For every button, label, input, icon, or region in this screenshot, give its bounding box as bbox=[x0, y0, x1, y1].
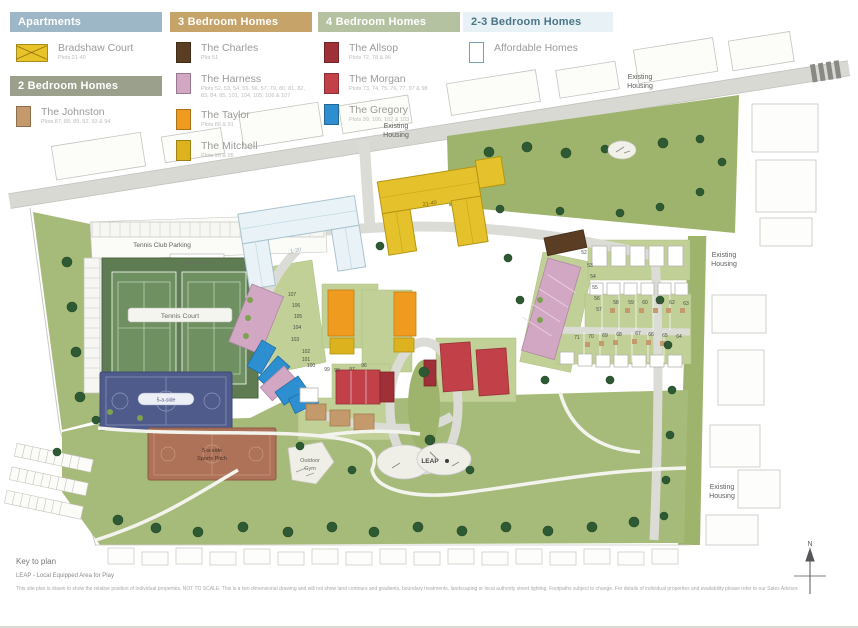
plot-number: 104 bbox=[293, 325, 302, 331]
plot-number: 69 bbox=[602, 333, 608, 339]
plot-number: 105 bbox=[294, 314, 303, 320]
plot-number: 97 bbox=[349, 367, 355, 373]
plot-number: 106 bbox=[292, 303, 301, 309]
bradshaw-court-swatch bbox=[16, 44, 48, 62]
svg-text:Housing: Housing bbox=[627, 83, 653, 90]
plot-number: 53 bbox=[587, 263, 593, 269]
legend-column-apartments: Apartments Bradshaw Court Plots 21-40 2 … bbox=[10, 12, 162, 127]
legend-item-gregory: The Gregory Plots 99, 100, 102 & 103 bbox=[324, 104, 460, 125]
plot-number: 60 bbox=[642, 300, 648, 306]
legend-item-morgan: The Morgan Plots 73, 74, 75, 76, 77, 97 … bbox=[324, 73, 460, 94]
gregory-swatch bbox=[324, 104, 339, 125]
spectator-area-label: Spectator Area bbox=[183, 260, 211, 265]
plot-number: 68 bbox=[616, 332, 622, 338]
leap-marker-dot bbox=[445, 459, 449, 463]
allsop-swatch bbox=[324, 42, 339, 63]
legend-item-allsop: The Allsop Plots 72, 78 & 96 bbox=[324, 42, 460, 63]
plot-number: 54 bbox=[590, 274, 596, 280]
leap-note: LEAP - Local Equipped Area for Play bbox=[16, 573, 836, 579]
plot-number: 64 bbox=[676, 334, 682, 340]
plot-number: 102 bbox=[302, 349, 311, 355]
charles-swatch bbox=[176, 42, 191, 63]
legend-item-bradshaw-court: Bradshaw Court Plots 21-40 bbox=[16, 42, 162, 62]
svg-text:Housing: Housing bbox=[383, 132, 409, 139]
svg-text:Housing: Housing bbox=[709, 493, 735, 500]
top-green-feature bbox=[608, 141, 636, 159]
existing-housing-label: Existing bbox=[710, 484, 735, 491]
legend-item-name: Bradshaw Court bbox=[58, 42, 133, 54]
taylor-swatch bbox=[176, 109, 191, 130]
plot-number: 59 bbox=[628, 300, 634, 306]
harness-swatch bbox=[176, 73, 191, 94]
disclaimer-text: This site plan is drawn to show the rela… bbox=[16, 586, 806, 592]
plot-number: 62 bbox=[669, 300, 675, 306]
plot-number: 56 bbox=[594, 296, 600, 302]
plot-number: 63 bbox=[683, 301, 689, 307]
legend-header-2-bed: 2 Bedroom Homes bbox=[10, 76, 162, 96]
five-a-side-pitch bbox=[148, 428, 276, 480]
legend-item-affordable-homes: Affordable Homes bbox=[469, 42, 613, 63]
plot-number: 55 bbox=[592, 285, 598, 291]
legend-item-johnston: The Johnston Plots 87, 88, 89, 92, 93 & … bbox=[16, 106, 162, 127]
plot-number: 51 bbox=[579, 239, 585, 245]
existing-housing-label: Existing bbox=[628, 74, 653, 81]
legend-header-3-bed: 3 Bedroom Homes bbox=[170, 12, 312, 32]
legend-column-4-bed: 4 Bedroom Homes The Allsop Plots 72, 78 … bbox=[318, 12, 460, 125]
plot-number: 103 bbox=[291, 337, 300, 343]
plot-number: 70 bbox=[588, 334, 594, 340]
pitch-label: 5-a-side bbox=[202, 448, 222, 454]
plot-number: 58 bbox=[613, 300, 619, 306]
plot-number: 67 bbox=[635, 331, 641, 337]
north-label: N bbox=[807, 541, 812, 548]
plot-number: 52 bbox=[581, 250, 587, 256]
legend-item-plots: Plots 21-40 bbox=[58, 55, 133, 62]
block-21-40-label: 21-40 bbox=[422, 200, 437, 208]
plot-number: 71 bbox=[574, 335, 580, 341]
site-plan-page: N Existing Housing Existing Housing Exis… bbox=[0, 0, 858, 628]
morgan-swatch bbox=[324, 73, 339, 94]
tennis-club-parking-label: Tennis Club Parking bbox=[133, 242, 191, 249]
johnston-swatch bbox=[16, 106, 31, 127]
affordable-homes-swatch bbox=[469, 42, 484, 63]
leap-label: LEAP bbox=[421, 458, 439, 465]
legend-column-2-3-bed: 2-3 Bedroom Homes Affordable Homes bbox=[463, 12, 613, 63]
outdoor-gym-label: Outdoor bbox=[300, 458, 320, 464]
svg-text:Housing: Housing bbox=[711, 261, 737, 268]
legend-item-mitchell: The Mitchell Plots 90 & 95 bbox=[176, 140, 312, 161]
legend-header-2-3-bed: 2-3 Bedroom Homes bbox=[463, 12, 613, 32]
plot-number: 107 bbox=[288, 292, 297, 298]
plot-number: 65 bbox=[662, 333, 668, 339]
key-to-plan: Key to plan LEAP - Local Equipped Area f… bbox=[16, 557, 836, 592]
legend-header-4-bed: 4 Bedroom Homes bbox=[318, 12, 460, 32]
legend-item-charles: The Charles Plot 51 bbox=[176, 42, 312, 63]
plot-number: 61 bbox=[656, 300, 662, 306]
svg-text:Gym: Gym bbox=[304, 466, 316, 472]
plot-number: 99 bbox=[324, 367, 330, 373]
key-title: Key to plan bbox=[16, 557, 836, 566]
plot-number: 96 bbox=[361, 363, 367, 369]
tennis-court-label: Tennis Court bbox=[161, 313, 199, 320]
legend-column-3-bed: 3 Bedroom Homes The Charles Plot 51 The … bbox=[170, 12, 312, 161]
legend-header-apartments: Apartments bbox=[10, 12, 162, 32]
ball-court-label: 5-a-side bbox=[157, 398, 176, 404]
plot-number: 100 bbox=[307, 363, 316, 369]
svg-text:Sports Pitch: Sports Pitch bbox=[197, 456, 227, 462]
legend-item-harness: The Harness Plots 52, 53, 54, 55, 56, 57… bbox=[176, 73, 312, 99]
legend-item-taylor: The Taylor Plots 86 & 91 bbox=[176, 109, 312, 130]
plot-number: 98 bbox=[334, 368, 340, 374]
plot-number: 57 bbox=[596, 307, 602, 313]
plot-number: 66 bbox=[648, 332, 654, 338]
mitchell-swatch bbox=[176, 140, 191, 161]
existing-housing-label: Existing bbox=[712, 252, 737, 259]
